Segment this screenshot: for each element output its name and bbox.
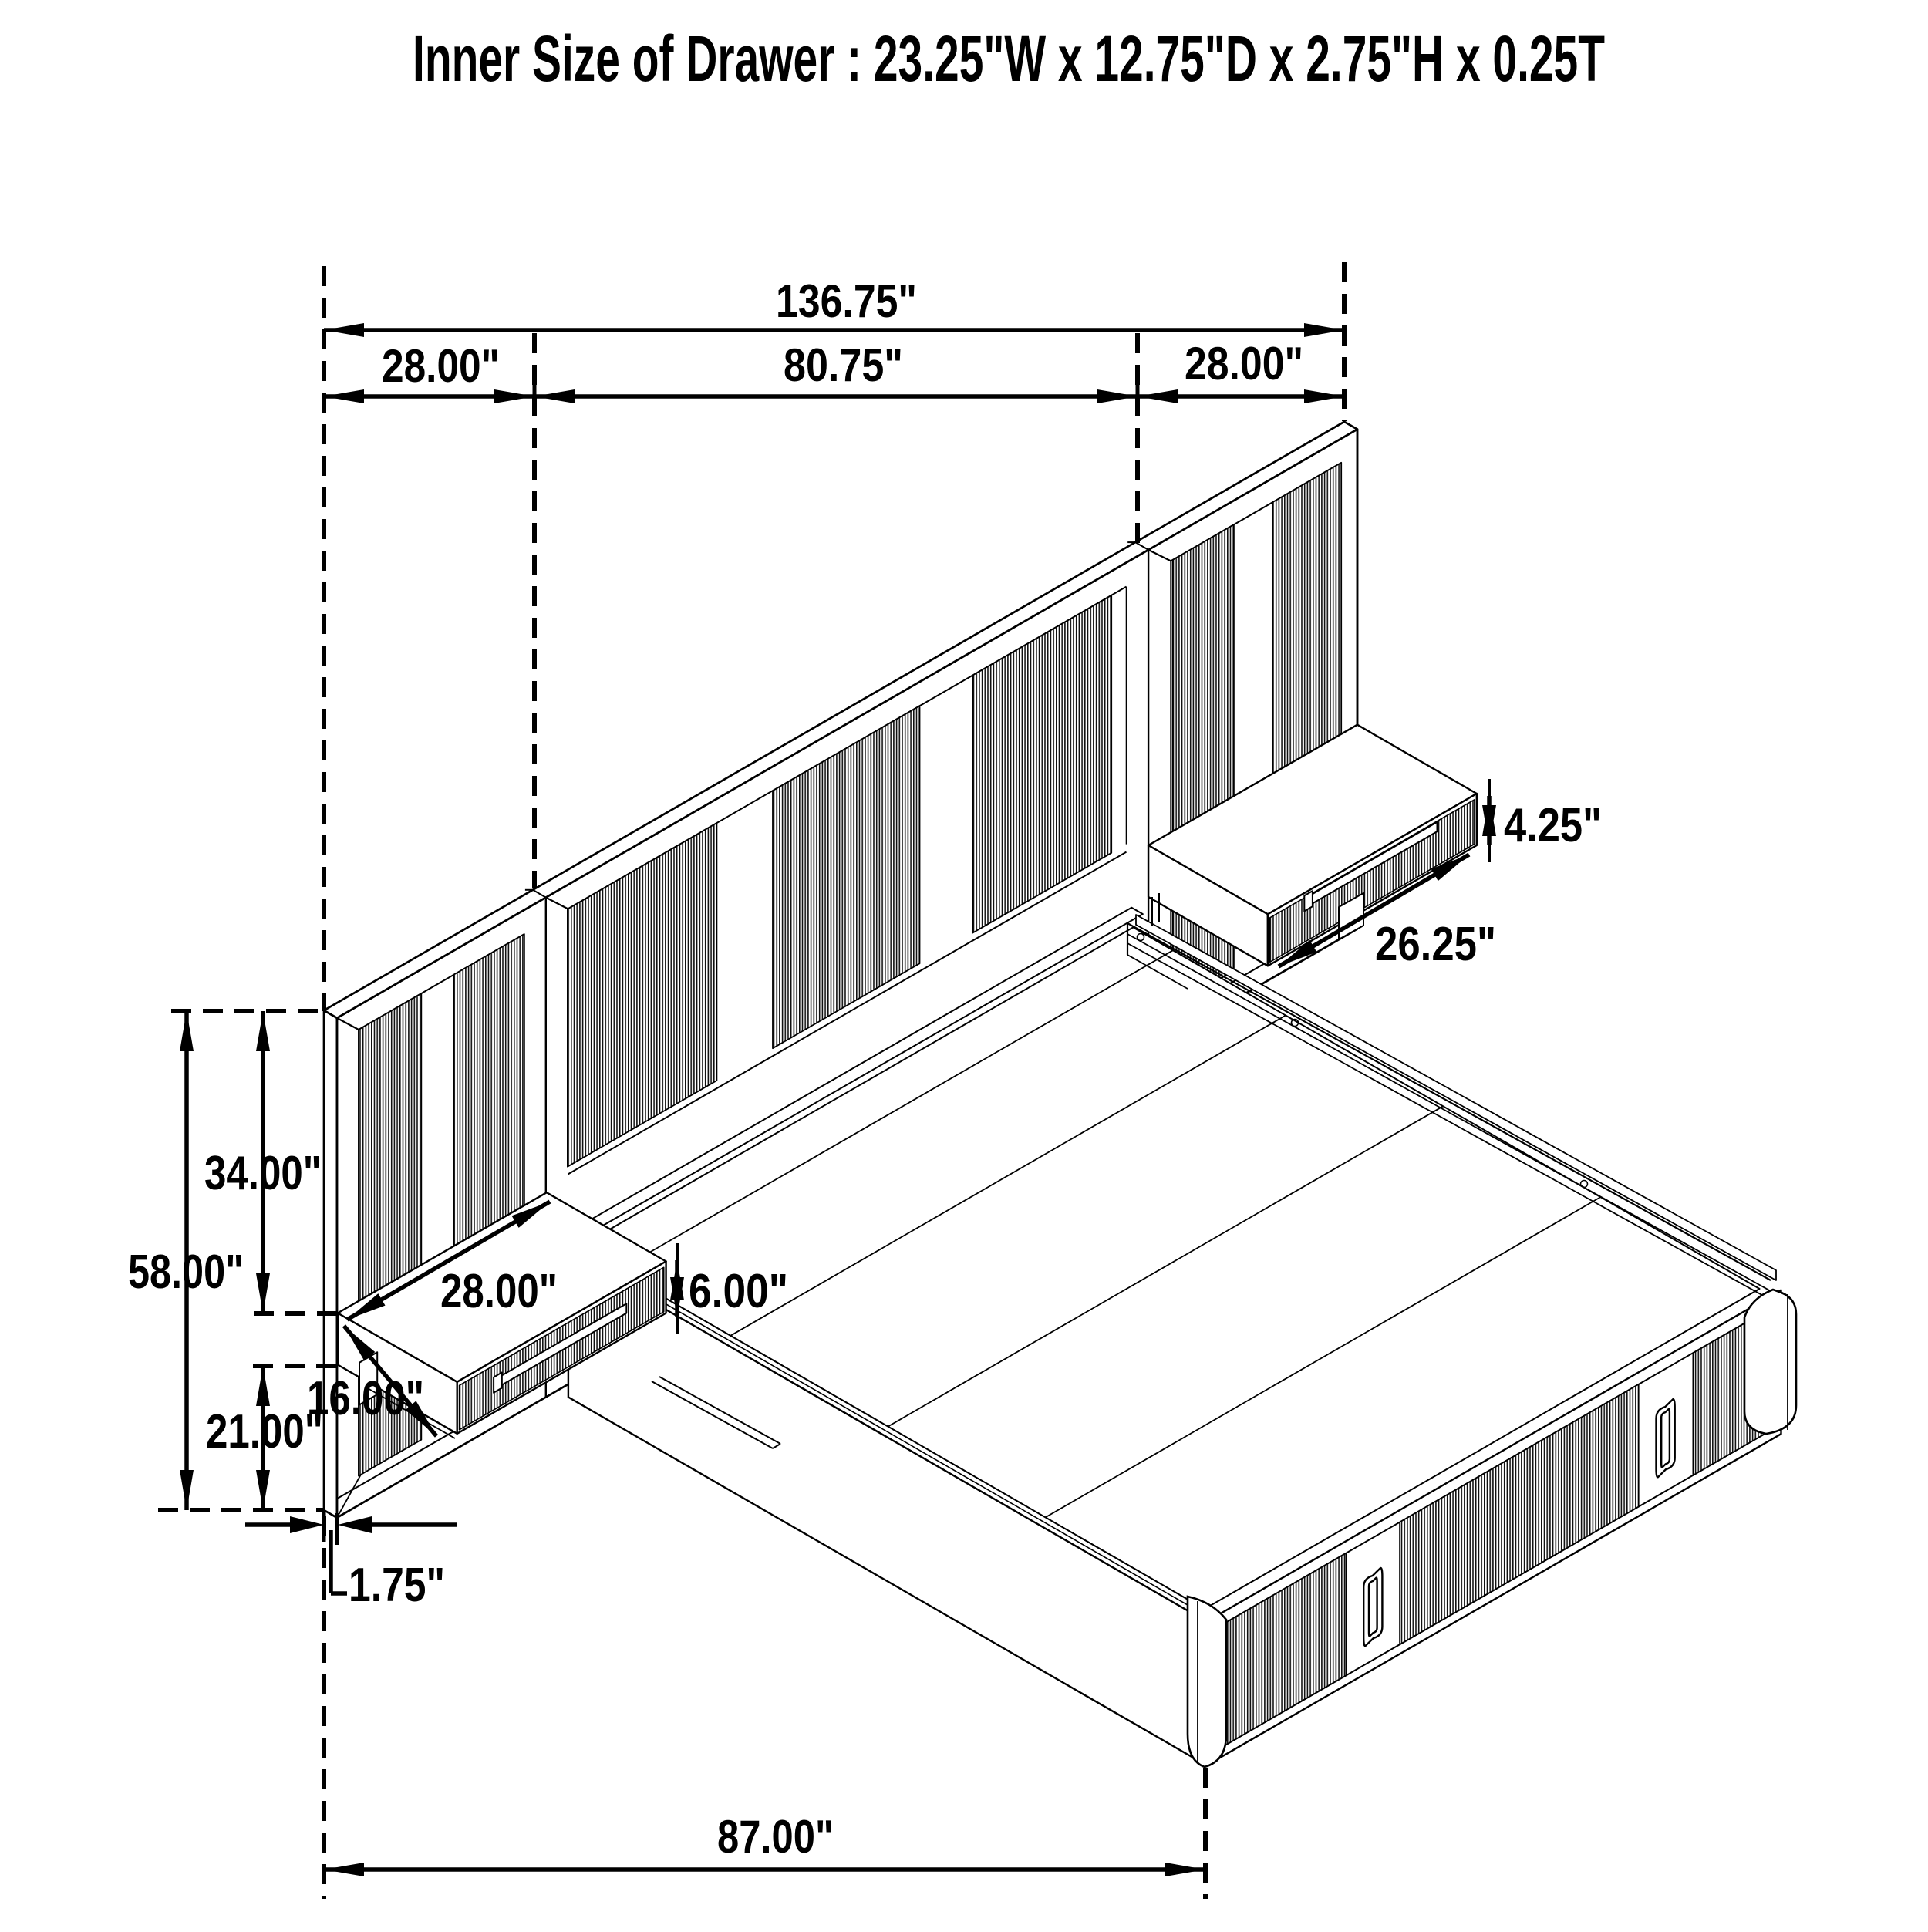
svg-text:Inner Size of Drawer : 23.25"W: Inner Size of Drawer : 23.25"W x 12.75"D… [413, 22, 1605, 95]
svg-text:1.75": 1.75" [349, 1559, 445, 1612]
svg-text:6.00": 6.00" [689, 1265, 788, 1318]
svg-text:136.75": 136.75" [776, 275, 917, 327]
svg-text:80.75": 80.75" [784, 339, 903, 391]
svg-text:28.00": 28.00" [440, 1265, 558, 1318]
svg-text:4.25": 4.25" [1504, 799, 1602, 852]
svg-text:28.00": 28.00" [382, 340, 500, 392]
svg-text:28.00": 28.00" [1185, 338, 1303, 389]
svg-text:26.25": 26.25" [1375, 918, 1496, 971]
svg-text:87.00": 87.00" [717, 1811, 834, 1863]
